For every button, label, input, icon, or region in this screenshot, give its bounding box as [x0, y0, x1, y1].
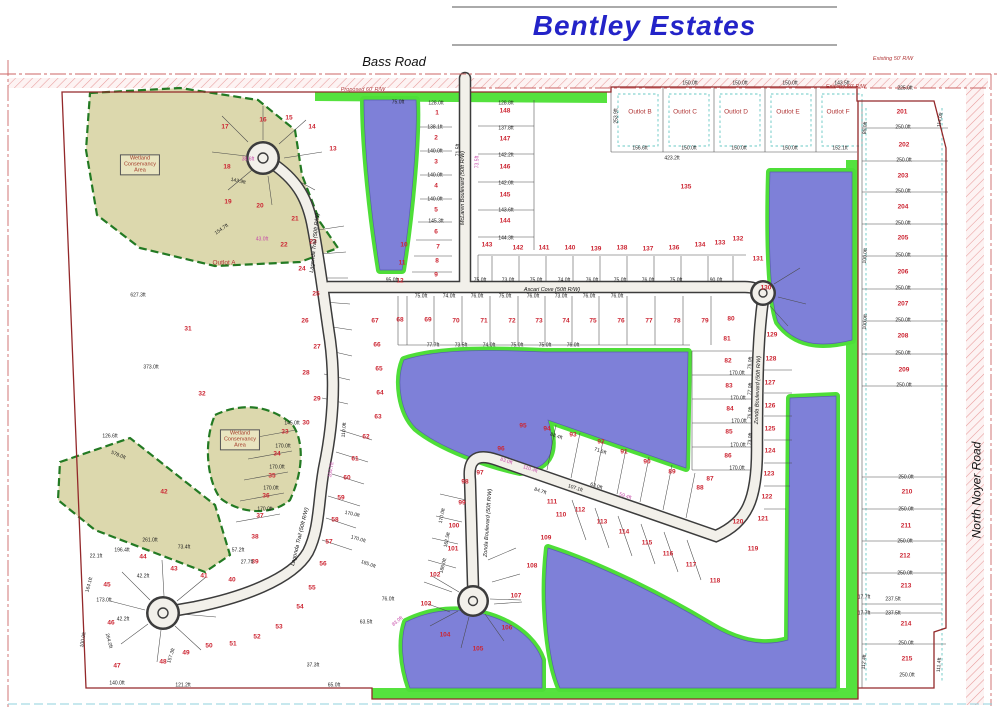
dimension-label: 250.0ft — [898, 475, 913, 480]
lot-number: 116 — [663, 552, 674, 559]
lot-number: 13 — [329, 147, 336, 154]
lot-number: 213 — [901, 584, 912, 591]
lot-number: 112 — [575, 508, 586, 515]
lot-number: 128 — [766, 357, 777, 364]
dimension-label: 264.0ft — [103, 633, 112, 649]
lot-number: 25 — [312, 292, 319, 299]
dimension-label: 75.0ft — [392, 100, 405, 105]
dimension-label: 150.0ft — [782, 81, 797, 86]
dimension-label: 170.0ft — [269, 465, 284, 470]
lot-number: 214 — [901, 622, 912, 629]
lot-number: 50 — [205, 644, 212, 651]
dimension-label: 250.0ft — [898, 641, 913, 646]
lot-number: 45 — [103, 583, 110, 590]
dimension-label: 140.0ft — [427, 173, 442, 178]
lot-number: 124 — [765, 449, 776, 456]
lot-number: 24 — [298, 267, 305, 274]
lot-number: 29 — [313, 397, 320, 404]
dimension-label: 75.0ft — [539, 343, 552, 348]
lot-number: 60 — [343, 476, 350, 483]
lot-number: 104 — [440, 633, 451, 640]
lot-number: 71 — [480, 319, 487, 326]
lot-number: 96 — [497, 447, 504, 454]
lot-number: 58 — [331, 518, 338, 525]
lot-number: 139 — [591, 247, 602, 254]
dimension-label: 85.0ft — [863, 122, 869, 135]
lot-number: 49 — [182, 651, 189, 658]
dimension-label: 71.5ft — [593, 448, 607, 457]
dimension-label: 75.0ft — [670, 278, 683, 283]
area-label: Wetland Conservancy Area — [120, 154, 160, 175]
lot-number: 7 — [436, 245, 440, 252]
lot-number: 46 — [107, 621, 114, 628]
lot-number: 79 — [701, 319, 708, 326]
lot-number: 78 — [673, 319, 680, 326]
lot-number: 35 — [268, 474, 275, 481]
area-label: Outlot F — [826, 110, 849, 117]
lot-number: 21 — [291, 217, 298, 224]
lot-number: 86 — [724, 454, 731, 461]
lot-number: 118 — [710, 579, 721, 586]
street-name-label: Zonda Boulevard (50ft R/W) — [484, 489, 495, 558]
lot-number: 134 — [695, 243, 706, 250]
dimension-label: 170.0ft — [275, 444, 290, 449]
lot-number: 63 — [374, 415, 381, 422]
lot-number: 34 — [273, 452, 280, 459]
dimension-label: 73.5ft — [455, 343, 468, 348]
dimension-label: 250.0ft — [896, 158, 911, 163]
lot-number: 40 — [228, 578, 235, 585]
lot-number: 130 — [761, 286, 772, 293]
lot-number: 26 — [301, 319, 308, 326]
dimension-label: 43.0ft — [256, 237, 269, 242]
area-label: Outlot A — [212, 261, 235, 268]
lot-number: 57 — [325, 540, 332, 547]
lot-number: 121 — [758, 517, 769, 524]
dimension-label: 84.7ft — [533, 488, 547, 497]
dimension-label: 578.0ft — [110, 451, 126, 462]
dimension-label: 100.0ft — [863, 248, 870, 264]
lot-number: 69 — [424, 318, 431, 325]
dimension-label: 76.0ft — [611, 294, 624, 299]
lot-number: 17 — [221, 125, 228, 132]
lot-number: 55 — [308, 586, 315, 593]
dimension-label: 76.0ft — [527, 294, 540, 299]
lot-number: 84 — [726, 407, 733, 414]
lot-number: 80 — [727, 317, 734, 324]
lot-number: 27 — [313, 345, 320, 352]
dimension-label: 100.0ft — [863, 314, 870, 330]
lot-number: 82 — [724, 359, 731, 366]
area-label: Outlot D — [724, 110, 748, 117]
dimension-label: 140.0ft — [109, 681, 124, 686]
dimension-label: 237.5ft — [885, 597, 900, 602]
dimension-label: 76.0ft — [586, 278, 599, 283]
lot-number: 30 — [302, 421, 309, 428]
dimension-label: 156.6ft — [632, 146, 647, 151]
dimension-label: 250.0ft — [895, 189, 910, 194]
street-name-label: McLaren Boulevard (50ft R/W) — [461, 151, 467, 225]
lot-number: 108 — [527, 564, 538, 571]
lot-number: 19 — [224, 200, 231, 207]
lot-number: 52 — [253, 635, 260, 642]
dimension-label: 42.2ft — [137, 574, 150, 579]
dimension-label: 170.0ft — [263, 486, 278, 491]
lot-number: 4 — [434, 184, 438, 191]
lot-number: 132 — [733, 237, 744, 244]
area-label: Outlot C — [673, 110, 697, 117]
dimension-label: 170.0ft — [257, 507, 272, 512]
dimension-label: 170.0ft — [729, 371, 744, 376]
lot-number: 73 — [535, 319, 542, 326]
dimension-label: 423.2ft — [664, 156, 679, 161]
dimension-label: 170.0ft — [730, 443, 745, 448]
lot-number: 9 — [434, 273, 438, 280]
dimension-label: 225.0ft — [897, 86, 912, 91]
area-label: Proposed 60' R/W — [341, 88, 385, 94]
dimension-label: 373.0ft — [143, 365, 158, 370]
dimension-label: 170.0ft — [350, 535, 366, 544]
lot-number: 205 — [898, 236, 909, 243]
lot-number: 44 — [139, 555, 146, 562]
dimension-label: 75.0ft — [748, 357, 754, 370]
street-name-label: Zonda Boulevard (50ft R/W) — [755, 356, 763, 425]
title-block: Bentley Estates — [452, 5, 837, 47]
lot-number: 119 — [748, 547, 759, 554]
dimension-label: 173.0ft — [96, 598, 111, 603]
dimension-label: 150.0ft — [732, 81, 747, 86]
lot-number: 212 — [900, 554, 911, 561]
lot-number: 93 — [569, 433, 576, 440]
dimension-label: 150.0ft — [682, 81, 697, 86]
dimension-label: 100.0ft — [80, 632, 88, 648]
lot-number: 87 — [706, 477, 713, 484]
lot-number: 56 — [319, 562, 326, 569]
lot-number: 51 — [229, 642, 236, 649]
lot-number: 203 — [898, 174, 909, 181]
dimension-label: 37.3ft — [307, 663, 320, 668]
lot-number: 65 — [375, 367, 382, 374]
lot-number: 115 — [642, 541, 653, 548]
street-name-label: Lagonda Trail (50ft R/W) — [310, 213, 322, 273]
lot-number: 126 — [765, 404, 776, 411]
lot-number: 208 — [898, 334, 909, 341]
dimension-label: 114.0ft — [937, 112, 945, 128]
dimension-label: 42.2ft — [117, 617, 130, 622]
dimension-label: 145.3ft — [428, 219, 443, 224]
dimension-label: 250.0ft — [895, 286, 910, 291]
dimension-label: 250.0ft — [895, 125, 910, 130]
dimension-label: 237.5ft — [885, 611, 900, 616]
lot-number: 202 — [899, 143, 910, 150]
street-name-label: North Noyer Road — [971, 442, 984, 539]
dimension-label: 142.0ft — [498, 181, 513, 186]
lot-number: 120 — [733, 520, 744, 527]
dimension-label: 250.0ft — [896, 383, 911, 388]
lot-number: 105 — [473, 647, 484, 654]
lot-number: 110 — [556, 513, 567, 520]
street-name-label: Ascari Cove (50ft R/W) — [524, 288, 580, 294]
lot-number: 3 — [434, 160, 438, 167]
dimension-label: 140.0ft — [427, 149, 442, 154]
lot-number: 83 — [725, 384, 732, 391]
dimension-label: 73.0ft — [555, 294, 568, 299]
page-title: Bentley Estates — [452, 9, 837, 43]
dimension-label: 140.0ft — [427, 197, 442, 202]
title-underline — [452, 44, 837, 46]
lot-number: 68 — [396, 318, 403, 325]
lot-number: 135 — [681, 185, 692, 192]
dimension-label: 186.0ft — [439, 558, 448, 574]
lot-number: 61 — [351, 457, 358, 464]
lot-number: 32 — [198, 392, 205, 399]
dimension-label: 138.1ft — [427, 125, 442, 130]
area-label: Existing 50' R/W — [873, 57, 913, 63]
lot-number: 5 — [434, 208, 438, 215]
dimension-label: 128.8ft — [498, 101, 513, 106]
dimension-label: 77.0ft — [748, 383, 754, 396]
lot-number: 144 — [500, 219, 511, 226]
lot-number: 207 — [898, 302, 909, 309]
dimension-label: 170.0ft — [439, 508, 447, 524]
dimension-label: 107.1ft — [567, 484, 583, 494]
dimension-label: 75.0ft — [530, 278, 543, 283]
dimension-label: 73.0ft — [502, 278, 515, 283]
map-text-layer: 1234567891011121314151617181920212223242… — [0, 0, 1000, 710]
lot-number: 33 — [281, 430, 288, 437]
dimension-label: 152.1ft — [832, 146, 847, 151]
lot-number: 1 — [435, 111, 439, 118]
lot-number: 106 — [502, 626, 513, 633]
lot-number: 97 — [476, 471, 483, 478]
dimension-label: 75.0ft — [415, 294, 428, 299]
lot-number: 16 — [259, 118, 266, 125]
dimension-label: 112.4ft — [862, 654, 869, 669]
dimension-label: 83.0ft — [499, 458, 513, 467]
lot-number: 67 — [371, 319, 378, 326]
lot-number: 88 — [696, 486, 703, 493]
lot-number: 77 — [645, 319, 652, 326]
lot-number: 145 — [500, 193, 511, 200]
dimension-label: 250.0ft — [897, 571, 912, 576]
lot-number: 142 — [513, 246, 524, 253]
dimension-label: 250.0ft — [899, 673, 914, 678]
area-label: Outlot B — [628, 110, 651, 117]
lot-number: 85 — [725, 430, 732, 437]
lot-number: 206 — [898, 270, 909, 277]
dimension-label: 90.0ft — [710, 278, 723, 283]
lot-number: 11 — [399, 261, 406, 268]
lot-number: 91 — [620, 450, 627, 457]
dimension-label: 63.0ft — [589, 483, 603, 492]
dimension-label: 250.0ft — [895, 351, 910, 356]
lot-number: 127 — [765, 381, 776, 388]
lot-number: 22 — [280, 243, 287, 250]
lot-number: 62 — [362, 435, 369, 442]
dimension-label: 73.0ft — [748, 433, 754, 446]
lot-number: 114 — [619, 530, 630, 537]
dimension-label: 75.0ft — [614, 278, 627, 283]
dimension-label: 76.0ft — [567, 343, 580, 348]
dimension-label: 250.0ft — [897, 539, 912, 544]
lot-number: 70 — [452, 319, 459, 326]
lot-number: 38 — [251, 535, 258, 542]
dimension-label: 170.0ft — [731, 419, 746, 424]
lot-number: 28 — [302, 371, 309, 378]
dimension-label: 250.0ft — [895, 253, 910, 258]
lot-number: 15 — [285, 116, 292, 123]
dimension-label: 150.0ft — [681, 146, 696, 151]
dimension-label: 111.4ft — [937, 658, 943, 673]
dimension-label: 164.1ft — [85, 577, 94, 593]
dimension-label: 126.6ft — [102, 434, 117, 439]
lot-number: 215 — [902, 657, 913, 664]
dimension-label: 143.6ft — [498, 208, 513, 213]
lot-number: 54 — [296, 605, 303, 612]
dimension-label: 142.2ft — [498, 153, 513, 158]
lot-number: 101 — [448, 547, 459, 554]
dimension-label: 110.4ft — [522, 465, 538, 475]
dimension-label: 143.9ft — [230, 178, 246, 186]
dimension-label: 104.7ft — [328, 462, 336, 478]
lot-number: 2 — [434, 136, 438, 143]
lot-number: 75 — [589, 319, 596, 326]
lot-number: 66 — [373, 343, 380, 350]
lot-number: 122 — [762, 495, 773, 502]
dimension-label: 76.0ft — [471, 294, 484, 299]
dimension-label: 76.0ft — [583, 294, 596, 299]
lot-number: 14 — [308, 125, 315, 132]
dimension-label: 73.4ft — [178, 545, 191, 550]
lot-number: 111 — [547, 500, 557, 507]
dimension-label: 75.0ft — [499, 294, 512, 299]
lot-number: 90 — [643, 460, 650, 467]
lot-number: 76 — [617, 319, 624, 326]
dimension-label: 250.0ft — [895, 221, 910, 226]
plat-map-page: Bentley Estates 123456789101112131415161… — [0, 0, 1000, 710]
lot-number: 113 — [597, 520, 608, 527]
lot-number: 31 — [184, 327, 191, 334]
lot-number: 133 — [715, 241, 726, 248]
lot-number: 103 — [421, 602, 432, 609]
lot-number: 37 — [256, 514, 263, 521]
dimension-label: 74.0ft — [558, 278, 571, 283]
dimension-label: 73.5ft — [475, 156, 480, 169]
lot-number: 92 — [597, 440, 604, 447]
lot-number: 143 — [482, 243, 493, 250]
dimension-label: 17.7ft — [858, 611, 871, 616]
lot-number: 117 — [686, 563, 697, 570]
dimension-label: 88.4ft — [549, 433, 563, 442]
dimension-label: 95.0ft — [386, 278, 399, 283]
dimension-label: 154.7ft — [214, 223, 230, 236]
lot-number: 42 — [160, 490, 167, 497]
lot-number: 10 — [400, 243, 407, 250]
lot-number: 123 — [764, 472, 775, 479]
dimension-label: 27.7ft — [241, 560, 254, 565]
lot-number: 95 — [519, 424, 526, 431]
dimension-label: 253.9ft — [614, 108, 619, 123]
lot-number: 94 — [543, 427, 550, 434]
lot-number: 204 — [898, 205, 909, 212]
lot-number: 102 — [430, 573, 441, 580]
lot-number: 47 — [113, 664, 120, 671]
lot-number: 147 — [500, 137, 511, 144]
dimension-label: 57.2ft — [232, 548, 245, 553]
dimension-label: 157.3ft — [167, 648, 177, 664]
dimension-label: 38.6ft — [242, 157, 255, 162]
dimension-label: 145.0ft — [284, 421, 299, 426]
dimension-label: 627.3ft — [130, 293, 145, 298]
dimension-label: 196.4ft — [114, 548, 129, 553]
lot-number: 6 — [434, 230, 438, 237]
dimension-label: 65.0ft — [328, 683, 341, 688]
dimension-label: 137.8ft — [498, 126, 513, 131]
lot-number: 138 — [617, 246, 628, 253]
dimension-label: 121.2ft — [175, 683, 190, 688]
dimension-label: 63.5ft — [360, 620, 373, 625]
lot-number: 36 — [262, 494, 269, 501]
lot-number: 211 — [901, 524, 912, 531]
lot-number: 41 — [200, 574, 207, 581]
dimension-label: 59.4ft — [618, 493, 632, 502]
lot-number: 18 — [223, 165, 230, 172]
dimension-label: 170.0ft — [729, 466, 744, 471]
dimension-label: 75.0ft — [511, 343, 524, 348]
area-label: Outlot E — [776, 110, 799, 117]
dimension-label: 22.1ft — [90, 554, 103, 559]
dimension-label: 110.0ft — [342, 422, 349, 437]
lot-number: 98 — [461, 480, 468, 487]
lot-number: 53 — [275, 625, 282, 632]
dimension-label: 77.7ft — [427, 343, 440, 348]
lot-number: 89 — [668, 470, 675, 477]
dimension-label: 76.0ft — [382, 597, 395, 602]
dimension-label: 128.0ft — [428, 101, 443, 106]
lot-number: 20 — [256, 204, 263, 211]
dimension-label: 185.0ft — [360, 560, 376, 570]
street-name-label: Lagonda Trail (50ft R/W) — [291, 507, 311, 566]
dimension-label: 76.0ft — [642, 278, 655, 283]
lot-number: 125 — [765, 427, 776, 434]
lot-number: 201 — [897, 110, 908, 117]
lot-number: 210 — [902, 490, 913, 497]
lot-number: 64 — [376, 391, 383, 398]
lot-number: 129 — [767, 333, 778, 340]
area-label: Wetland Conservancy Area — [220, 429, 260, 450]
lot-number: 81 — [723, 337, 730, 344]
street-name-label: Bass Road — [362, 55, 426, 69]
lot-number: 146 — [500, 165, 511, 172]
lot-number: 8 — [435, 259, 439, 266]
lot-number: 140 — [565, 246, 576, 253]
dimension-label: 17.7ft — [858, 595, 871, 600]
lot-number: 74 — [562, 319, 569, 326]
title-overline — [452, 6, 837, 8]
area-label: Existing 50' R/W — [826, 85, 866, 91]
dimension-label: 144.3ft — [498, 236, 513, 241]
lot-number: 107 — [511, 594, 522, 601]
lot-number: 131 — [753, 257, 764, 264]
dimension-label: 75.0ft — [474, 278, 487, 283]
lot-number: 72 — [508, 319, 515, 326]
dimension-label: 250.0ft — [898, 507, 913, 512]
lot-number: 109 — [541, 536, 552, 543]
lot-number: 148 — [500, 109, 511, 116]
lot-number: 141 — [539, 246, 550, 253]
dimension-label: 170.0ft — [730, 396, 745, 401]
dimension-label: 74.0ft — [483, 343, 496, 348]
